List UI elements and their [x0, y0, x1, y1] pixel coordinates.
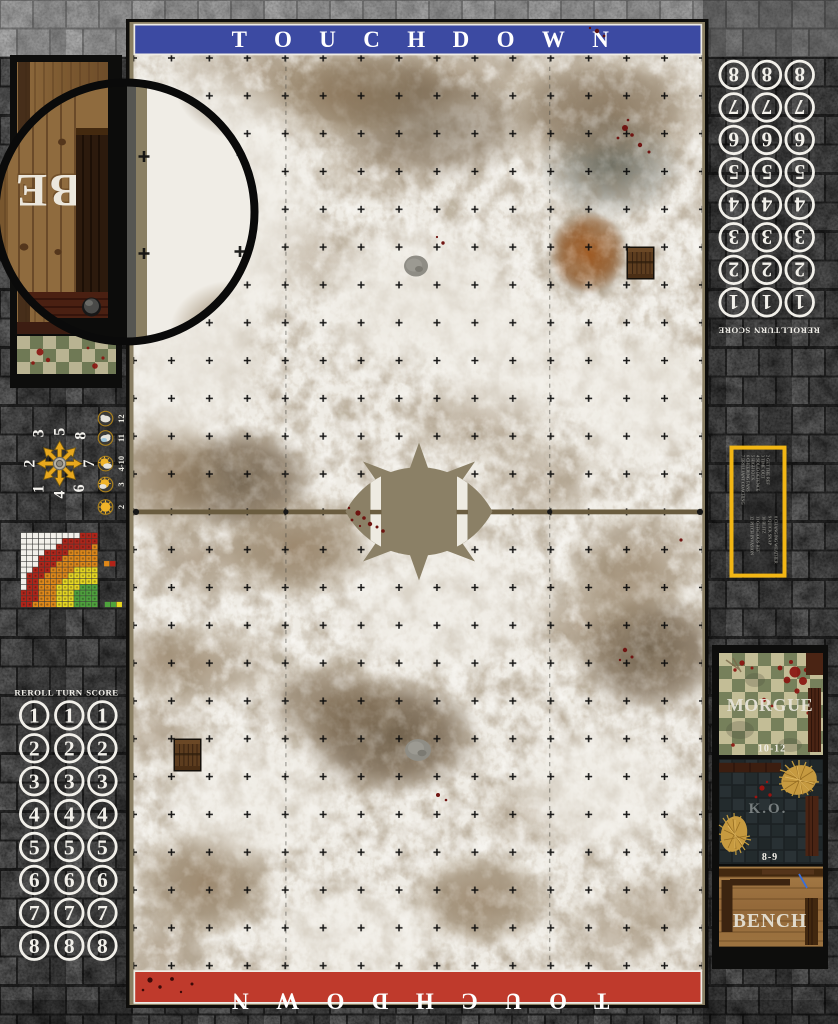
svg-text:5: 5: [762, 160, 773, 184]
svg-text:10 BLITZ: 10 BLITZ: [762, 516, 767, 534]
svg-text:1: 1: [64, 704, 75, 728]
svg-text:4-10: 4-10: [116, 456, 126, 472]
svg-text:3: 3: [31, 429, 48, 437]
svg-text:7: 7: [728, 95, 739, 119]
svg-text:7: 7: [29, 901, 40, 925]
svg-text:6: 6: [97, 868, 108, 892]
svg-text:REROLL: REROLL: [14, 688, 54, 698]
svg-text:12: 12: [116, 414, 126, 423]
svg-text:11 OFFICIOUS REF: 11 OFFICIOUS REF: [756, 516, 761, 553]
svg-text:8: 8: [728, 63, 739, 87]
svg-text:6: 6: [29, 868, 40, 892]
svg-text:9 QUICK SNAP: 9 QUICK SNAP: [768, 516, 773, 545]
svg-text:1: 1: [794, 290, 805, 314]
svg-text:1: 1: [29, 704, 40, 728]
svg-text:7 BRILLIANT COACHING: 7 BRILLIANT COACHING: [741, 455, 746, 505]
svg-text:3: 3: [29, 770, 40, 794]
svg-text:1: 1: [97, 704, 108, 728]
svg-text:5: 5: [52, 428, 69, 436]
svg-text:TURN: TURN: [753, 326, 780, 336]
svg-text:1: 1: [31, 485, 48, 493]
svg-text:1: 1: [728, 290, 739, 314]
svg-text:2: 2: [728, 258, 739, 282]
svg-text:3: 3: [116, 482, 126, 486]
svg-text:10-12: 10-12: [758, 744, 786, 755]
svg-text:8: 8: [97, 934, 108, 958]
svg-text:2: 2: [64, 737, 75, 761]
svg-text:5: 5: [794, 160, 805, 184]
svg-text:1: 1: [762, 290, 773, 314]
svg-text:8 CHANGING WEATHER: 8 CHANGING WEATHER: [774, 516, 779, 564]
svg-text:8: 8: [794, 63, 805, 87]
svg-text:4: 4: [761, 193, 772, 217]
svg-text:2: 2: [794, 258, 805, 282]
svg-text:12 PITCH INVASION: 12 PITCH INVASION: [750, 516, 755, 555]
svg-text:11: 11: [116, 434, 126, 442]
svg-text:3: 3: [97, 770, 108, 794]
svg-text:SCORE: SCORE: [718, 326, 750, 336]
svg-text:4: 4: [52, 491, 69, 499]
svg-text:4: 4: [728, 193, 739, 217]
svg-text:BENCH: BENCH: [733, 911, 807, 932]
svg-text:3: 3: [761, 225, 772, 249]
svg-text:2: 2: [21, 460, 38, 468]
svg-text:5: 5: [29, 835, 40, 859]
svg-text:7: 7: [97, 901, 108, 925]
svg-text:6: 6: [794, 128, 805, 152]
svg-text:5: 5: [728, 160, 739, 184]
svg-text:5: 5: [97, 835, 108, 859]
svg-text:3: 3: [64, 770, 75, 794]
svg-text:6: 6: [71, 484, 88, 492]
svg-text:8: 8: [761, 63, 772, 87]
svg-text:7: 7: [794, 95, 805, 119]
svg-text:5: 5: [64, 835, 75, 859]
svg-text:7: 7: [64, 901, 75, 925]
svg-text:6: 6: [64, 868, 75, 892]
svg-text:TOUCHDOWN: TOUCHDOWN: [232, 27, 637, 52]
svg-text:8: 8: [73, 432, 90, 440]
svg-text:K.O.: K.O.: [749, 801, 788, 817]
svg-text:BE: BE: [13, 164, 82, 216]
svg-text:6: 6: [728, 128, 739, 152]
svg-text:2: 2: [97, 737, 108, 761]
svg-text:3: 3: [794, 225, 805, 249]
svg-text:8-9: 8-9: [762, 852, 778, 863]
svg-text:8: 8: [29, 934, 40, 958]
svg-text:2: 2: [29, 737, 40, 761]
svg-text:2: 2: [116, 505, 126, 509]
svg-text:TURN: TURN: [56, 688, 83, 698]
svg-text:REROLL: REROLL: [780, 326, 820, 336]
svg-text:7: 7: [81, 460, 98, 468]
svg-text:7: 7: [761, 95, 772, 119]
svg-text:6: 6: [761, 128, 772, 152]
svg-text:MORGUE: MORGUE: [727, 695, 814, 715]
svg-text:4: 4: [29, 802, 40, 826]
svg-text:TOUCHDOWN: TOUCHDOWN: [205, 989, 610, 1014]
svg-text:3: 3: [728, 225, 739, 249]
svg-text:2: 2: [762, 258, 773, 282]
svg-text:SCORE: SCORE: [86, 688, 118, 698]
svg-text:4: 4: [97, 802, 108, 826]
svg-text:4: 4: [794, 193, 805, 217]
svg-text:8: 8: [64, 934, 75, 958]
svg-text:4: 4: [64, 802, 75, 826]
